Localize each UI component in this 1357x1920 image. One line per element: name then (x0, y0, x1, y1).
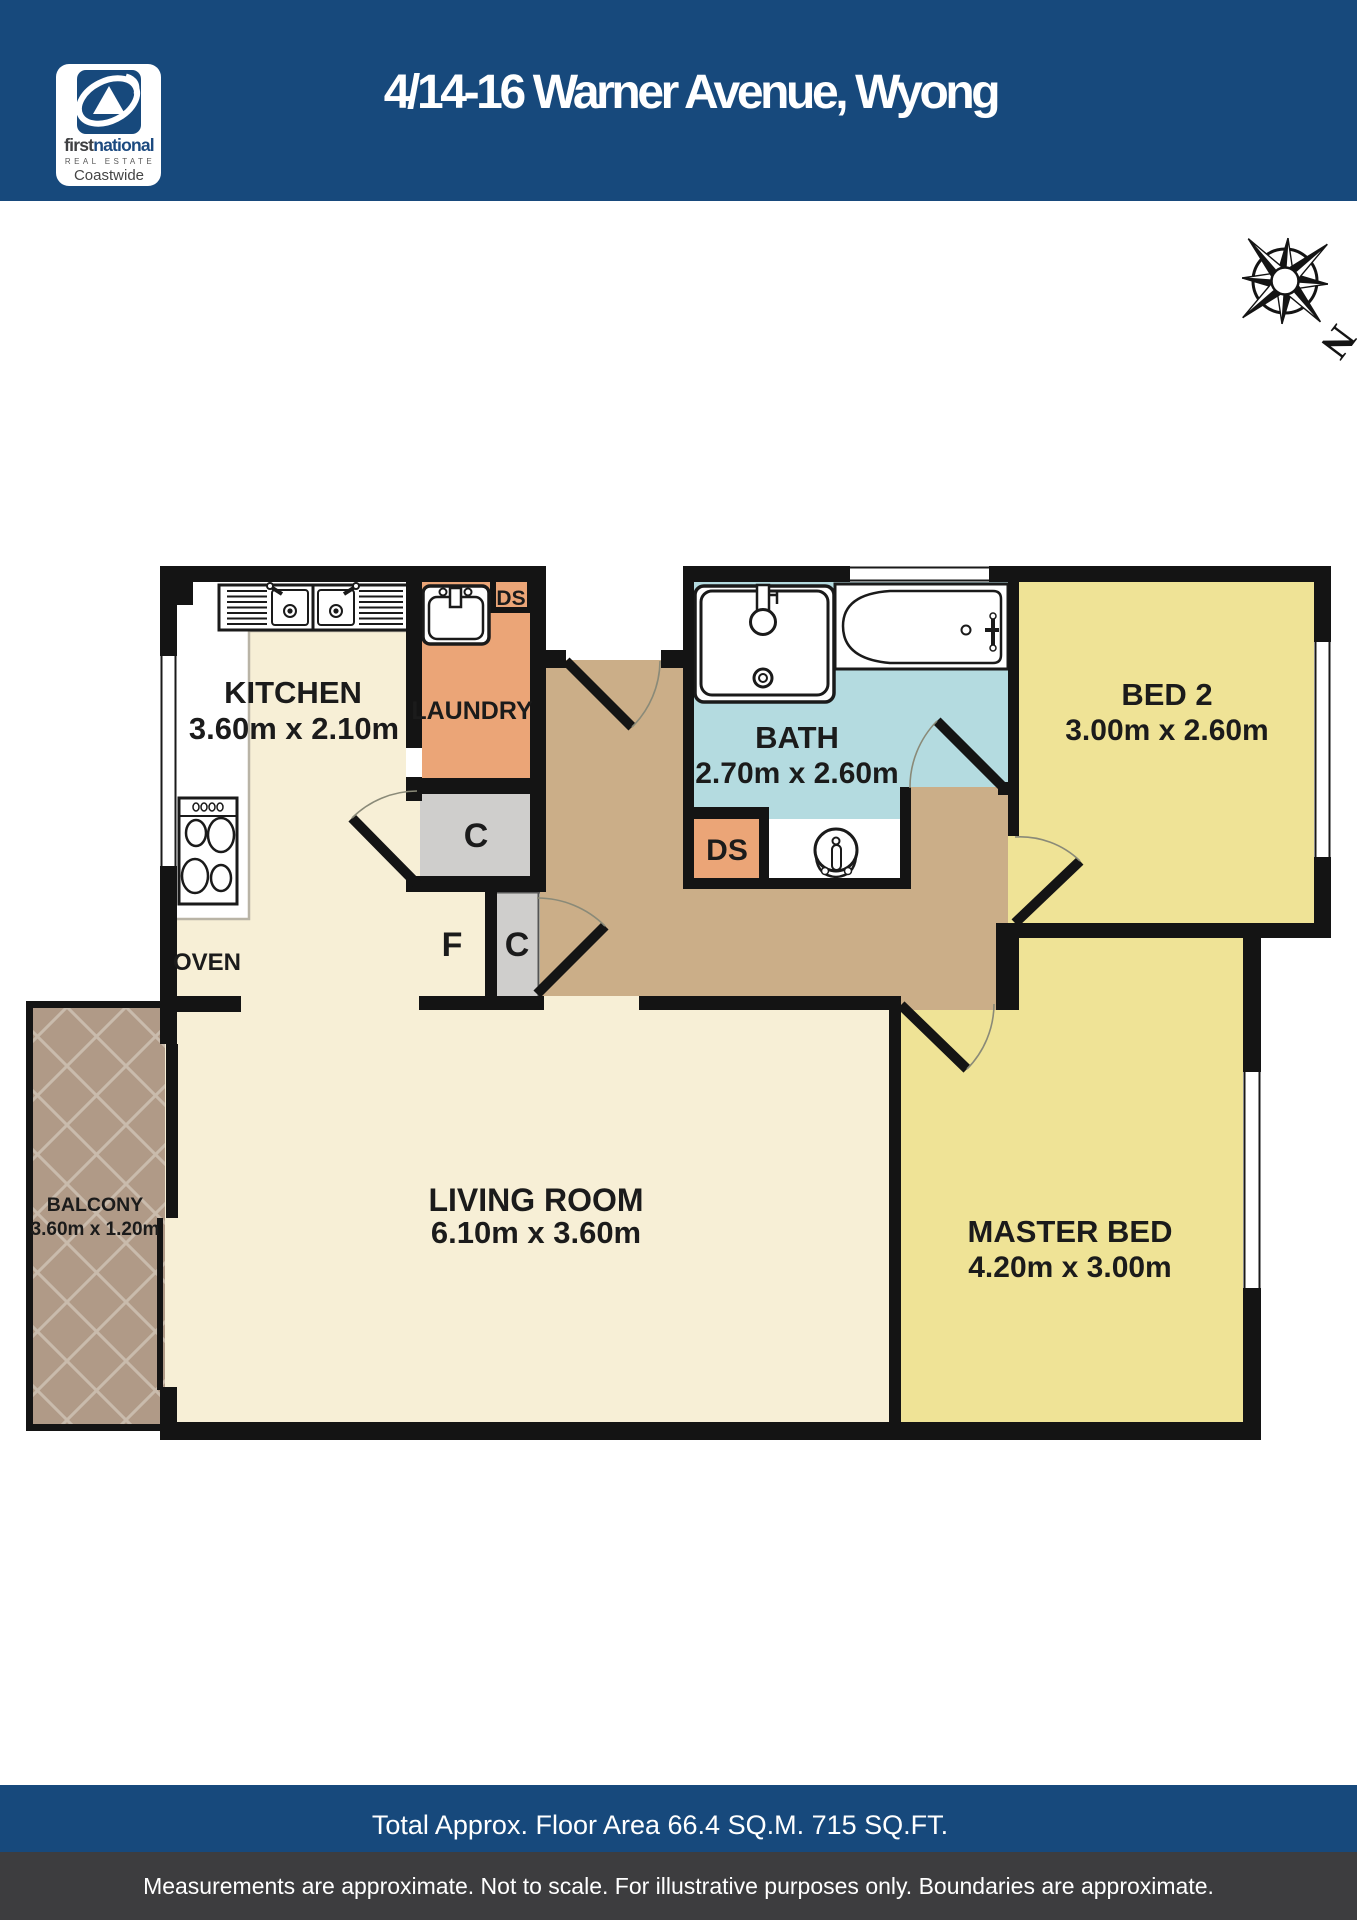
svg-text:2.70m x 2.60m: 2.70m x 2.60m (695, 757, 898, 790)
svg-text:3.60m x 2.10m: 3.60m x 2.10m (189, 711, 399, 746)
svg-text:LIVING ROOM: LIVING ROOM (428, 1182, 643, 1218)
svg-text:C: C (505, 926, 530, 964)
svg-text:BATH: BATH (755, 720, 839, 755)
svg-text:MASTER BED: MASTER BED (968, 1214, 1173, 1249)
svg-text:BALCONY: BALCONY (47, 1194, 143, 1216)
svg-text:DS: DS (496, 587, 525, 610)
svg-text:3.60m x 1.20m: 3.60m x 1.20m (31, 1219, 160, 1240)
svg-text:C: C (464, 817, 489, 855)
svg-text:KITCHEN: KITCHEN (224, 675, 362, 710)
svg-text:3.00m x 2.60m: 3.00m x 2.60m (1065, 714, 1268, 747)
svg-text:LAUNDRY: LAUNDRY (411, 697, 533, 725)
svg-text:OVEN: OVEN (173, 949, 241, 976)
svg-text:N: N (1312, 317, 1357, 367)
svg-text:4.20m x 3.00m: 4.20m x 3.00m (968, 1251, 1171, 1284)
svg-text:BED 2: BED 2 (1121, 677, 1212, 712)
svg-text:6.10m x 3.60m: 6.10m x 3.60m (431, 1215, 641, 1250)
svg-text:DS: DS (706, 834, 748, 867)
svg-text:F: F (442, 926, 463, 964)
